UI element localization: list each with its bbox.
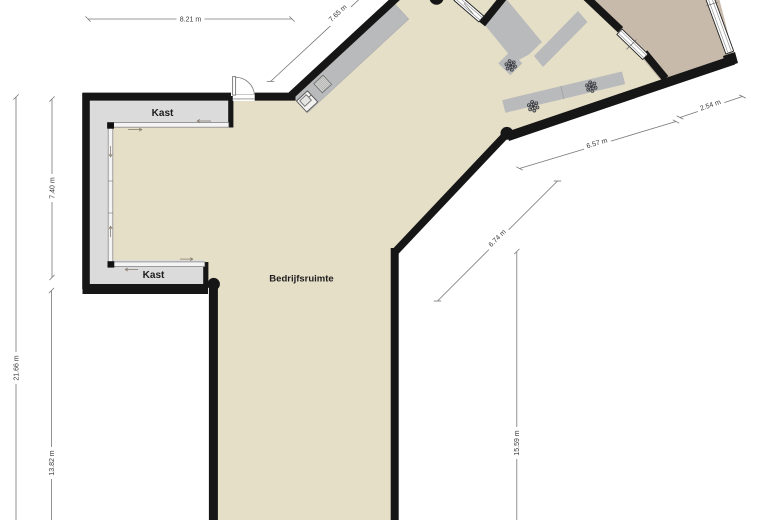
svg-text:6.74 m: 6.74 m: [488, 229, 508, 249]
svg-text:15.59 m: 15.59 m: [514, 430, 521, 455]
svg-text:2.54 m: 2.54 m: [699, 99, 722, 113]
svg-text:7.65 m: 7.65 m: [328, 4, 349, 24]
svg-text:13.82 m: 13.82 m: [49, 450, 56, 475]
svg-text:Bedrijfsruimte: Bedrijfsruimte: [269, 274, 333, 285]
svg-text:Kast: Kast: [143, 270, 165, 281]
svg-text:8.21 m: 8.21 m: [180, 16, 202, 23]
svg-text:6.57 m: 6.57 m: [586, 137, 609, 150]
svg-text:Kast: Kast: [152, 108, 174, 119]
svg-text:21.66 m: 21.66 m: [13, 355, 20, 380]
svg-text:7.40 m: 7.40 m: [49, 177, 56, 199]
